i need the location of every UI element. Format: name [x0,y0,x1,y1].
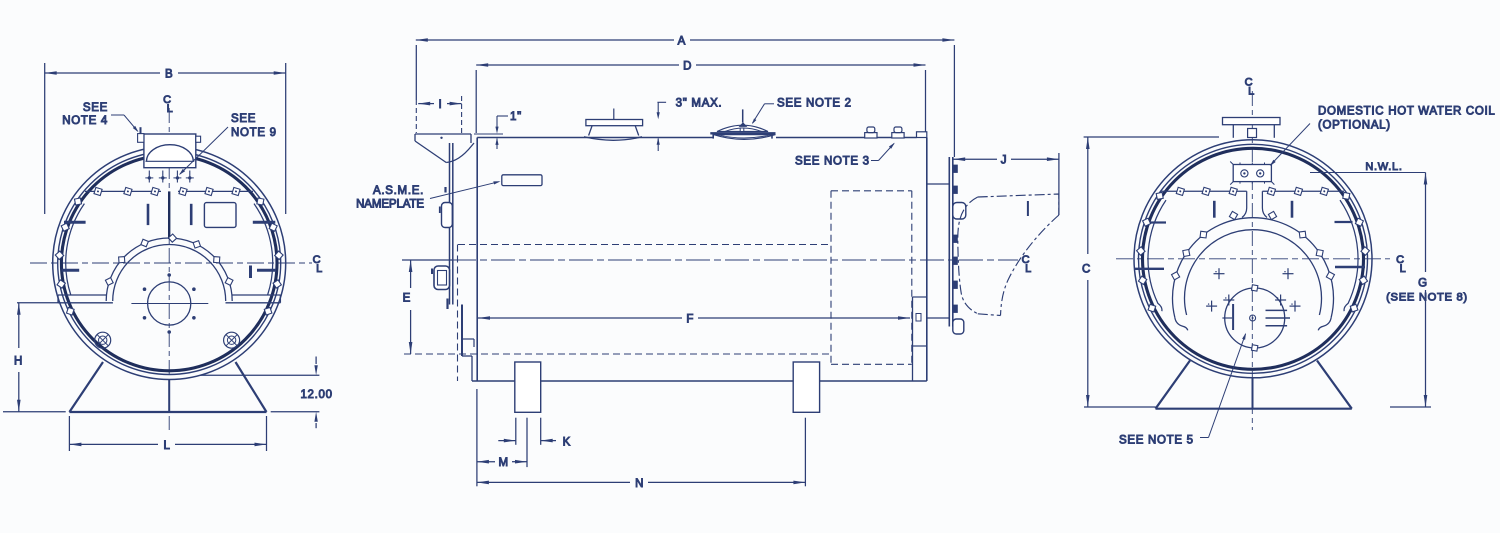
svg-text:SEE: SEE [231,113,256,125]
svg-text:E: E [403,292,411,304]
svg-text:12.00: 12.00 [300,389,332,401]
svg-text:D: D [683,60,692,72]
svg-text:C: C [1082,264,1091,276]
svg-text:L: L [1400,263,1407,275]
svg-text:NAMEPLATE: NAMEPLATE [356,199,424,211]
svg-text:J: J [1001,155,1007,167]
svg-text:NOTE 9: NOTE 9 [231,127,277,139]
svg-text:N: N [635,478,644,490]
svg-text:B: B [165,69,173,81]
svg-text:DOMESTIC HOT WATER COIL: DOMESTIC HOT WATER COIL [1318,106,1496,118]
svg-text:K: K [563,436,571,448]
svg-text:N.W.L.: N.W.L. [1365,161,1402,173]
svg-text:SEE NOTE 3: SEE NOTE 3 [795,156,870,168]
svg-text:F: F [686,313,694,325]
svg-text:G: G [1418,278,1428,290]
svg-text:(SEE NOTE 8): (SEE NOTE 8) [1386,292,1468,304]
svg-text:NOTE 4: NOTE 4 [62,115,108,127]
svg-text:1": 1" [510,111,522,123]
svg-text:SEE: SEE [83,102,108,114]
svg-text:(OPTIONAL): (OPTIONAL) [1318,120,1391,132]
svg-text:L: L [163,440,170,452]
svg-text:SEE NOTE 5: SEE NOTE 5 [1119,435,1194,447]
svg-text:A.S.M.E.: A.S.M.E. [373,185,424,197]
svg-text:L: L [167,103,174,115]
svg-text:L: L [316,263,323,275]
svg-text:A: A [678,35,686,47]
svg-text:SEE NOTE 2: SEE NOTE 2 [777,98,852,110]
svg-text:M: M [499,457,509,469]
svg-text:3" MAX.: 3" MAX. [676,98,723,110]
svg-text:I: I [438,99,442,111]
svg-text:H: H [14,356,23,368]
svg-text:L: L [1248,86,1255,98]
svg-text:L: L [1025,263,1032,275]
